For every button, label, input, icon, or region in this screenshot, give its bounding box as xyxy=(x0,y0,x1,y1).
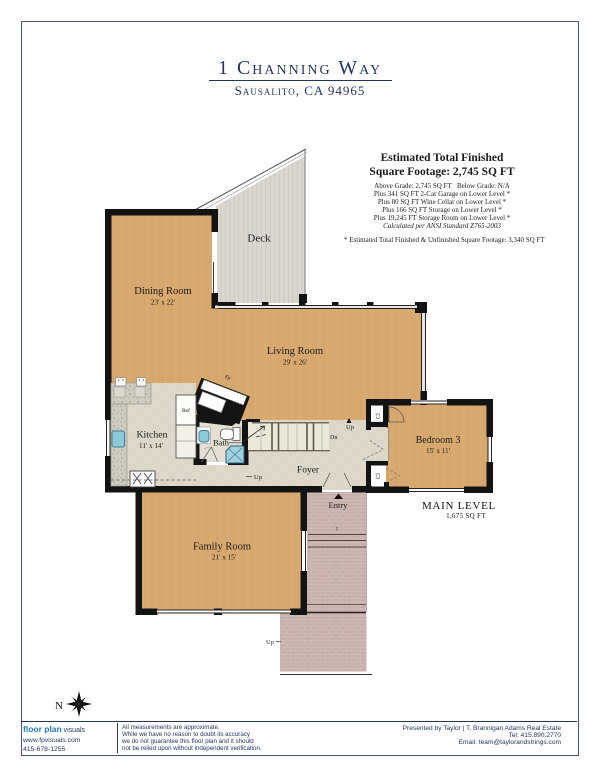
svg-text:Entry: Entry xyxy=(329,500,349,510)
svg-text:Deck: Deck xyxy=(247,233,271,245)
svg-text:Cl: Cl xyxy=(376,413,382,419)
svg-text:21' x 15': 21' x 15' xyxy=(212,554,236,562)
svg-text:11' x 14': 11' x 14' xyxy=(139,442,163,450)
svg-text:29' x 26': 29' x 26' xyxy=(283,359,307,367)
svg-text:5: 5 xyxy=(336,527,339,533)
svg-text:Up: Up xyxy=(254,474,262,481)
svg-text:Dn: Dn xyxy=(330,435,337,441)
svg-text:N: N xyxy=(55,700,63,712)
svg-text:Living Room: Living Room xyxy=(267,346,323,357)
svg-text:Family Room: Family Room xyxy=(193,542,251,553)
svg-text:Up: Up xyxy=(346,424,354,431)
svg-text:Foyer: Foyer xyxy=(297,466,320,476)
svg-text:Bath: Bath xyxy=(213,438,230,448)
svg-text:Bedroom 3: Bedroom 3 xyxy=(416,435,461,446)
svg-text:15' x 11': 15' x 11' xyxy=(426,447,450,455)
svg-text:Kitchen: Kitchen xyxy=(136,430,167,441)
svg-text:Cl: Cl xyxy=(376,473,382,479)
svg-text:Up: Up xyxy=(266,639,274,646)
svg-text:Ref: Ref xyxy=(182,407,190,414)
svg-text:Dining Room: Dining Room xyxy=(134,286,191,297)
svg-text:23' x 22': 23' x 22' xyxy=(151,299,175,307)
